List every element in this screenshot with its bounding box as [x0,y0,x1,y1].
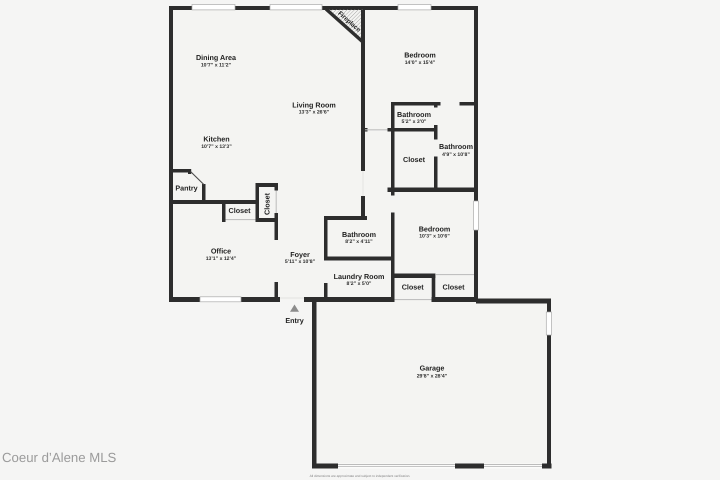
svg-text:8’2” x 5’0”: 8’2” x 5’0” [347,281,372,287]
svg-text:Dining Area: Dining Area [196,53,237,62]
svg-text:10’3” x 10’6”: 10’3” x 10’6” [419,233,450,239]
svg-text:13’3” x 26’6”: 13’3” x 26’6” [299,109,330,115]
svg-text:Foyer: Foyer [290,250,310,259]
svg-text:Closet: Closet [229,206,252,215]
svg-text:10’7” x 13’3”: 10’7” x 13’3” [201,144,232,150]
svg-text:5’11” x 10’8”: 5’11” x 10’8” [285,259,316,265]
svg-text:29’8” x 28’4”: 29’8” x 28’4” [417,373,448,379]
svg-text:4’9” x 10’8”: 4’9” x 10’8” [442,152,470,158]
svg-text:Closet: Closet [402,283,425,292]
svg-text:Closet: Closet [443,283,466,292]
svg-text:Bathroom: Bathroom [342,230,376,239]
svg-text:8’2” x 4’11”: 8’2” x 4’11” [345,239,373,245]
svg-text:Bedroom: Bedroom [404,51,436,60]
svg-text:10’7” x 11’2”: 10’7” x 11’2” [201,62,232,68]
svg-text:Kitchen: Kitchen [203,135,229,144]
svg-text:All dimensions are approximate: All dimensions are approximate and subje… [310,474,411,478]
svg-text:14’0” x 15’4”: 14’0” x 15’4” [405,60,436,66]
svg-text:Coeur d’Alene MLS: Coeur d’Alene MLS [2,450,117,465]
svg-text:Pantry: Pantry [175,184,197,193]
svg-text:Bathroom: Bathroom [439,142,473,151]
svg-text:Laundry Room: Laundry Room [334,272,385,281]
svg-text:Office: Office [211,247,231,256]
svg-text:13’1” x 12’4”: 13’1” x 12’4” [206,256,237,262]
svg-text:Bathroom: Bathroom [397,110,431,119]
svg-text:Closet: Closet [403,155,426,164]
svg-text:Closet: Closet [262,192,271,215]
svg-text:Entry: Entry [285,316,303,325]
svg-text:Living Room: Living Room [292,101,336,110]
svg-text:Bedroom: Bedroom [419,225,451,234]
svg-text:Garage: Garage [420,364,445,373]
svg-text:5’2” x 3’0”: 5’2” x 3’0” [402,119,427,125]
